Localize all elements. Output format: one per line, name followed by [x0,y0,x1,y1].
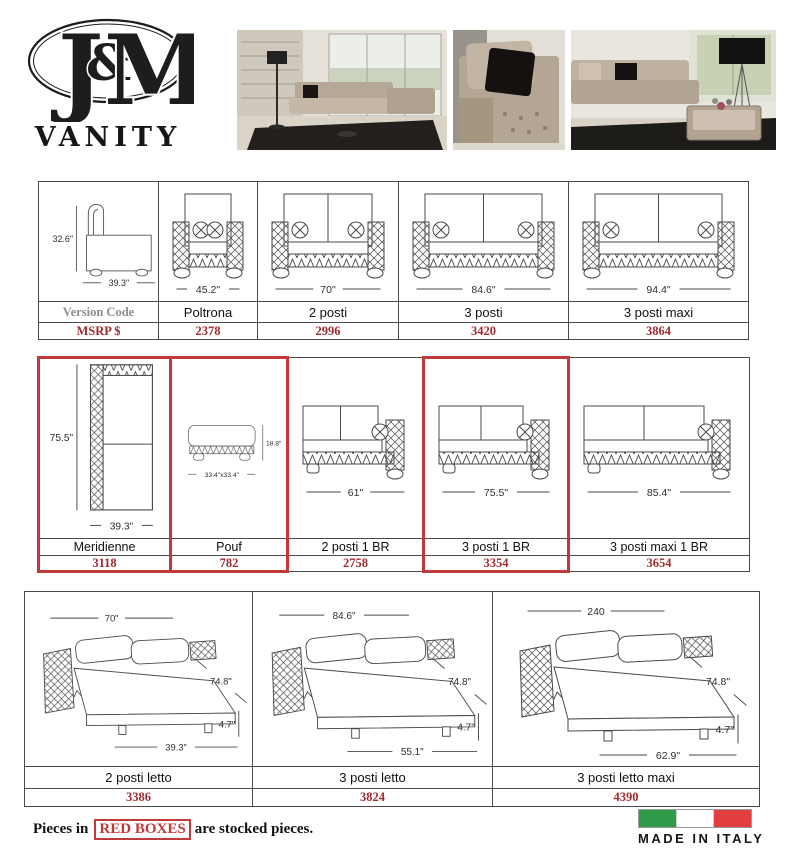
svg-text:33.4"x33.4": 33.4"x33.4" [204,472,239,479]
poltrona-diagram: 45.2" [159,182,257,301]
variant-pouf: 18.8"33.4"x33.4" Pouf 782 [171,358,288,571]
variant-label: 2 posti 1 BR [288,538,423,555]
variant-2-posti: 70" 2 posti 2996 [258,182,399,339]
variant-label: Meridienne [39,538,170,555]
catalog-page: { "brand": {"logo_j":"J","logo_amp":"&",… [0,0,800,865]
living-room-sectional-photo [237,30,447,150]
flag-green-band [639,810,676,827]
variant-label: 3 posti [399,301,568,322]
msrp-value: 782 [171,555,287,571]
svg-text:85.4": 85.4" [647,487,671,499]
variant-3-posti-maxi-1br: 85.4" 3 posti maxi 1 BR 3654 [569,358,749,571]
variant-3-posti-letto-maxi: 24074.8"4.7"62.9" 3 posti letto maxi 439… [493,592,759,806]
variant-3-posti-1br: 75.5" 3 posti 1 BR 3354 [424,358,569,571]
pouf-diagram: 18.8"33.4"x33.4" [171,358,287,538]
msrp-value: 3864 [569,322,748,339]
2-posti-diagram: 70" [258,182,398,301]
svg-text:74.8": 74.8" [706,676,730,688]
jm-logo: J & M VANITY [22,4,194,153]
variant-label: 3 posti letto maxi [493,766,759,788]
msrp-value: 4390 [493,788,759,806]
svg-text:32.6": 32.6" [53,234,74,244]
variant-label: 2 posti letto [25,766,252,788]
variant-poltrona: 45.2" Poltrona 2378 [159,182,258,339]
2-posti-1br-diagram: 61" [288,358,423,538]
variant-version-code: 32.6"39.3" Version Code MSRP $ [39,182,159,339]
note-suffix: are stocked pieces. [195,821,313,837]
variant-label: 3 posti maxi 1 BR [569,538,749,555]
collection-name: VANITY [22,122,194,153]
variant-meridienne: 75.5"39.3" Meridienne 3118 [39,358,171,571]
made-in-italy: MADE IN ITALY [638,809,752,846]
svg-text:39.3": 39.3" [109,521,133,532]
svg-text:84.6": 84.6" [333,610,356,621]
product-photos [237,30,776,150]
sofa-lamp-table-photo [571,30,776,150]
msrp-value: 2378 [159,322,257,339]
msrp-value: 3420 [399,322,568,339]
msrp-value: 2758 [288,555,423,571]
svg-text:75.5": 75.5" [49,433,73,444]
msrp-value: 3654 [569,555,749,571]
variant-label: 3 posti 1 BR [424,538,568,555]
note-prefix: Pieces in [33,821,88,837]
msrp-value: 3118 [39,555,170,571]
msrp-value: 3386 [25,788,252,806]
svg-text:70": 70" [105,613,119,624]
svg-text:18.8": 18.8" [265,440,281,447]
variant-3-posti-maxi: 94.4" 3 posti maxi 3864 [569,182,748,339]
variant-label: Pouf [171,538,287,555]
svg-text:84.6": 84.6" [471,284,495,296]
svg-text:39.3": 39.3" [109,278,130,288]
spec-table-letto: 70"74.8"4.7"39.3" 2 posti letto 3386 84.… [24,591,760,807]
svg-text:61": 61" [348,487,364,499]
svg-text:4.7": 4.7" [716,724,735,736]
variant-label: 3 posti letto [253,766,492,788]
variant-label: 3 posti maxi [569,301,748,322]
italy-flag-icon [638,809,752,828]
logo-letter-m: M [104,14,194,122]
flag-white-band [676,810,715,827]
msrp-value: 3354 [424,555,568,571]
meridienne-diagram: 75.5"39.3" [39,358,170,538]
armchair-closeup-photo [453,30,565,150]
made-in-italy-label: MADE IN ITALY [638,831,752,846]
variant-label: 2 posti [258,301,398,322]
stocked-pieces-note: Pieces inRED BOXESare stocked pieces. [33,819,313,840]
variant-label: Poltrona [159,301,257,322]
side-view-diagram: 32.6"39.3" [39,182,158,301]
svg-text:70": 70" [320,284,336,296]
3-posti-diagram: 84.6" [399,182,568,301]
3-posti-letto-diagram: 84.6"74.8"4.7"55.1" [253,592,492,766]
svg-text:55.1": 55.1" [401,747,424,758]
msrp-header: MSRP $ [39,322,158,339]
svg-text:74.8": 74.8" [448,677,471,688]
variant-2-posti-letto: 70"74.8"4.7"39.3" 2 posti letto 3386 [25,592,253,806]
variant-2-posti-1br: 61" 2 posti 1 BR 2758 [288,358,424,571]
svg-text:4.7": 4.7" [219,718,235,729]
svg-text:4.7": 4.7" [457,722,475,733]
svg-text:74.8": 74.8" [210,675,232,686]
3-posti-1br-diagram: 75.5" [424,358,568,538]
svg-text:39.3": 39.3" [165,742,187,753]
svg-text:94.4": 94.4" [646,284,670,296]
svg-text:75.5": 75.5" [484,487,508,499]
red-boxes-highlight: RED BOXES [94,819,190,840]
spec-table-1br: 75.5"39.3" Meridienne 3118 18.8"33.4"x33… [38,357,750,572]
msrp-value: 3824 [253,788,492,806]
3-posti-maxi-diagram: 94.4" [569,182,748,301]
svg-text:240: 240 [587,606,605,618]
3-posti-letto-maxi-diagram: 24074.8"4.7"62.9" [493,592,759,766]
svg-text:62.9": 62.9" [656,750,680,762]
flag-red-band [714,810,751,827]
version-code-header: Version Code [39,301,158,322]
msrp-value: 2996 [258,322,398,339]
spec-table-versions: 32.6"39.3" Version Code MSRP $ 45.2" Pol… [38,181,749,340]
jm-logo-mark: J & M [22,4,194,122]
2-posti-letto-diagram: 70"74.8"4.7"39.3" [25,592,252,766]
variant-3-posti-letto: 84.6"74.8"4.7"55.1" 3 posti letto 3824 [253,592,493,806]
3-posti-maxi-1br-diagram: 85.4" [569,358,749,538]
variant-3-posti: 84.6" 3 posti 3420 [399,182,569,339]
svg-text:45.2": 45.2" [196,284,220,296]
